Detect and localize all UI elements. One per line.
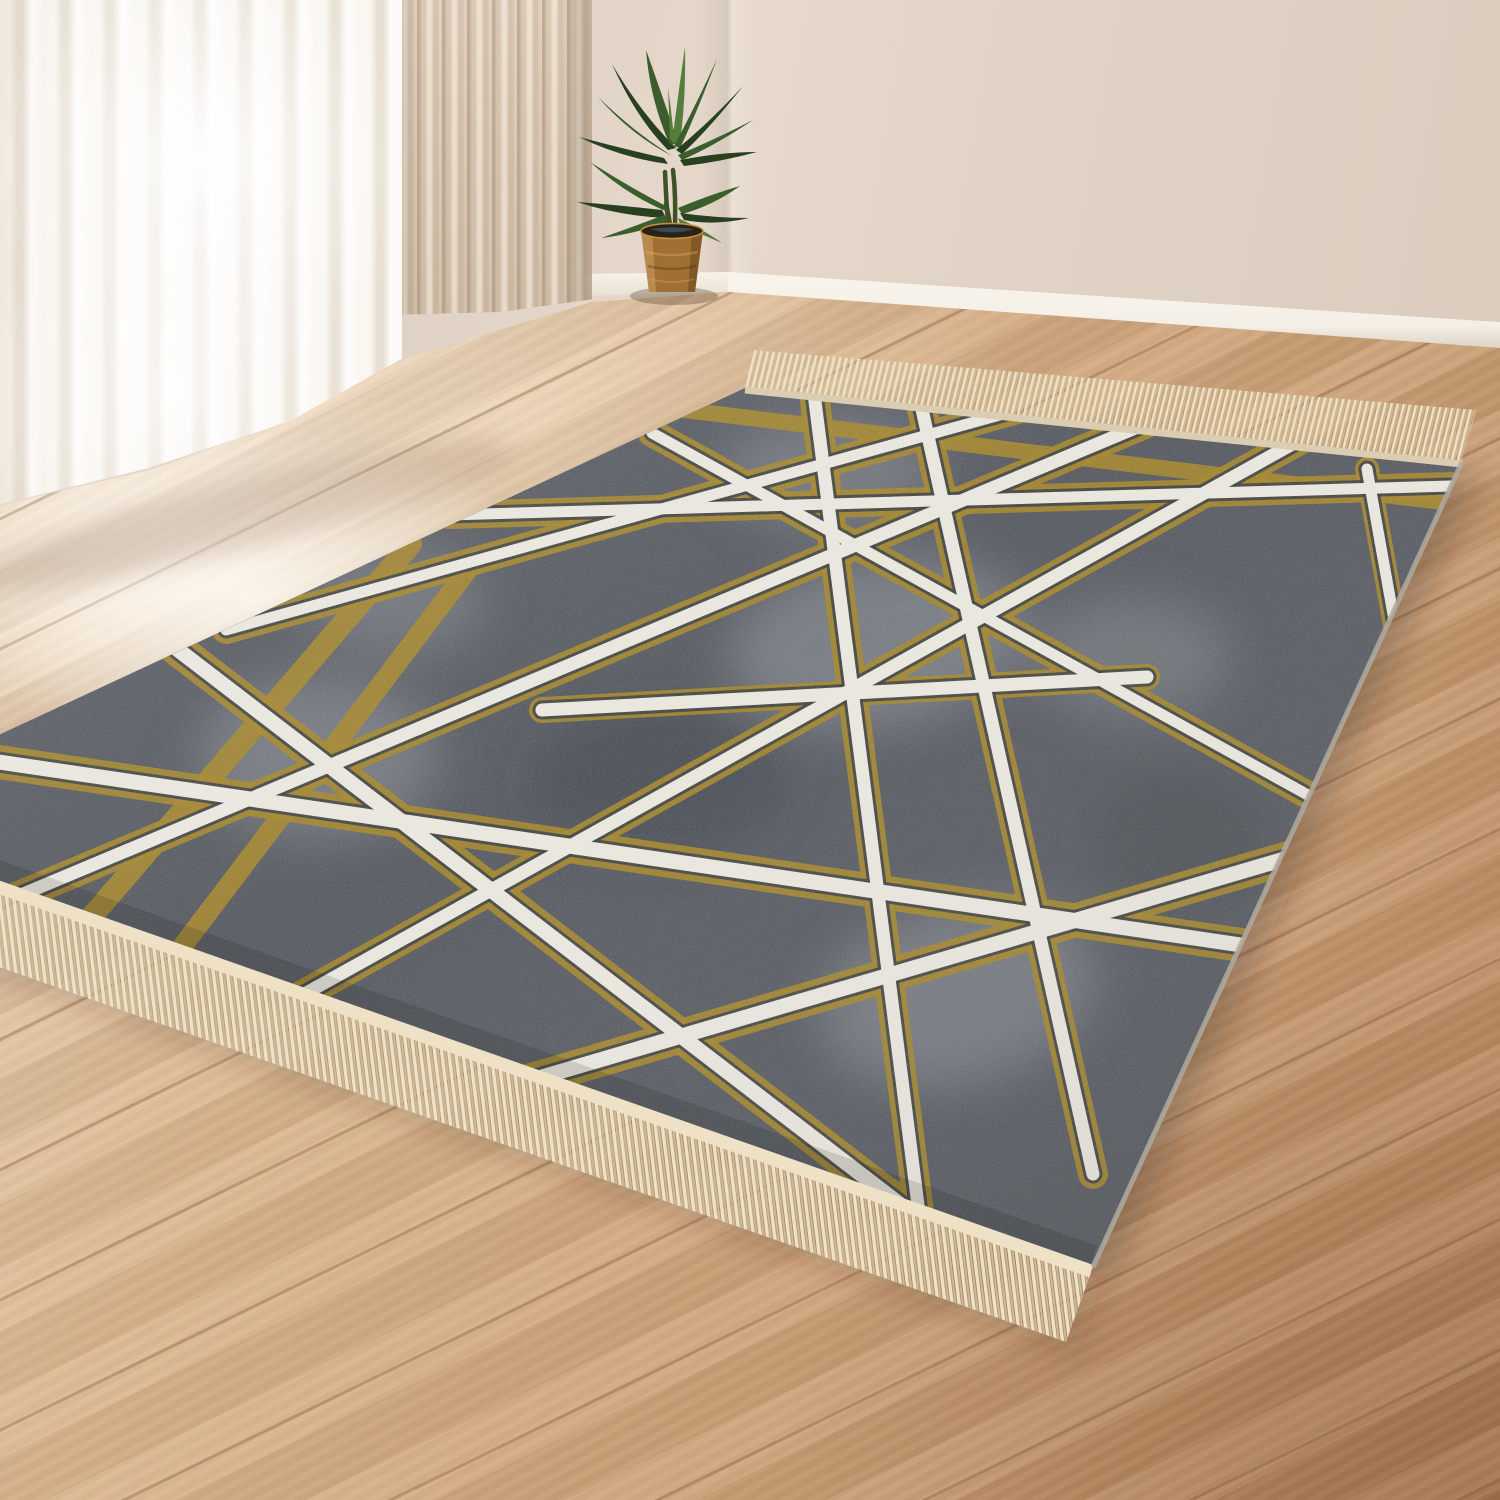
beige-curtain — [392, 0, 592, 315]
room-scene — [0, 0, 1500, 1500]
baseboard-left — [585, 272, 728, 296]
